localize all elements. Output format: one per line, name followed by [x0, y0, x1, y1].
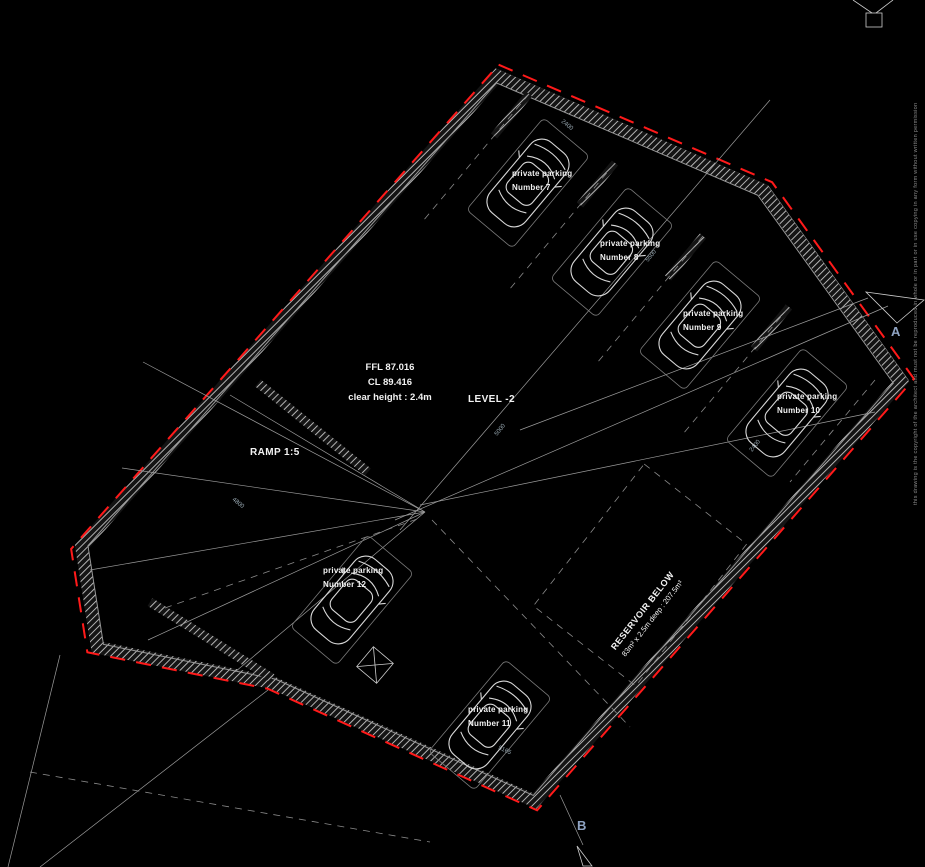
dim-label: 5000 — [494, 423, 507, 438]
dim-label: 5500 — [645, 249, 658, 264]
bay-12 — [290, 535, 413, 665]
parking-label: private parking — [683, 309, 743, 318]
cad-drawing-canvas: private parking Number 7 private parking… — [0, 0, 925, 867]
ffl-value: FFL 87.016 — [366, 362, 415, 373]
parking-label: Number 8 — [600, 253, 639, 262]
interior-stub-walls — [150, 94, 789, 678]
floor-plan-svg: private parking Number 7 private parking… — [0, 0, 925, 867]
parking-label: private parking — [512, 169, 572, 178]
section-marker-a-label: A — [891, 324, 901, 339]
section-marker-b: B — [577, 818, 592, 866]
dim-label: 5165 — [497, 745, 512, 756]
level-label: LEVEL -2 — [468, 394, 515, 405]
shaft-symbol — [357, 647, 394, 684]
clear-height-value: clear height : 2.4m — [348, 392, 431, 403]
levels-info-block: FFL 87.016 CL 89.416 clear height : 2.4m — [348, 362, 431, 403]
parking-label: private parking — [600, 239, 660, 248]
parking-labels: private parking Number 7 private parking… — [323, 169, 837, 728]
parking-label: private parking — [777, 392, 837, 401]
cl-value: CL 89.416 — [368, 377, 412, 388]
ramp-label: RAMP 1:5 — [250, 447, 300, 458]
parking-label: Number 10 — [777, 406, 820, 415]
dimension-labels: 2400 5500 5000 4800 5165 2400 — [231, 119, 763, 757]
reservoir-title: RESERVOIR BELOW — [609, 570, 676, 652]
dim-label: 4800 — [231, 497, 246, 510]
car-icon — [561, 199, 663, 305]
reservoir-outline — [533, 464, 746, 686]
parking-label: private parking — [468, 705, 528, 714]
parking-label: Number 7 — [512, 183, 551, 192]
car-icon — [301, 547, 403, 653]
parking-label: private parking — [323, 566, 383, 575]
section-marker-b-label: B — [577, 818, 586, 833]
dim-label: 2400 — [560, 119, 575, 132]
parking-label: Number 12 — [323, 580, 366, 589]
copyright-notice: this drawing is the copyright of the arc… — [913, 103, 919, 505]
parking-label: Number 9 — [683, 323, 722, 332]
section-flag-icon — [853, 0, 893, 27]
parking-label: Number 11 — [468, 719, 511, 728]
